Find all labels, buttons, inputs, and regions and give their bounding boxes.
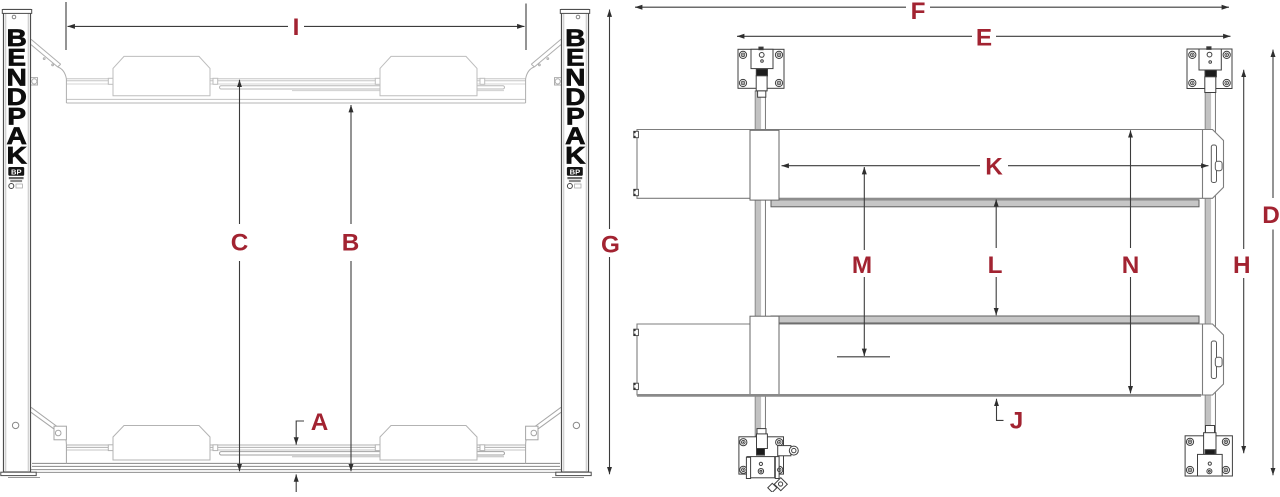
svg-text:BP: BP xyxy=(570,167,581,176)
svg-text:M: M xyxy=(852,252,872,279)
svg-text:E: E xyxy=(976,24,992,51)
svg-text:N: N xyxy=(1122,252,1140,279)
svg-text:G: G xyxy=(601,232,620,259)
svg-text:I: I xyxy=(293,14,300,41)
svg-text:K: K xyxy=(7,141,27,169)
svg-text:C: C xyxy=(231,230,249,257)
svg-text:K: K xyxy=(985,154,1003,181)
svg-text:B: B xyxy=(342,230,360,257)
svg-text:L: L xyxy=(988,252,1003,279)
svg-text:BP: BP xyxy=(11,167,22,176)
svg-text:D: D xyxy=(1262,202,1280,229)
svg-text:H: H xyxy=(1233,252,1251,279)
svg-text:J: J xyxy=(1010,407,1024,434)
svg-text:K: K xyxy=(565,141,585,169)
svg-text:F: F xyxy=(911,0,926,25)
svg-text:A: A xyxy=(311,409,329,436)
